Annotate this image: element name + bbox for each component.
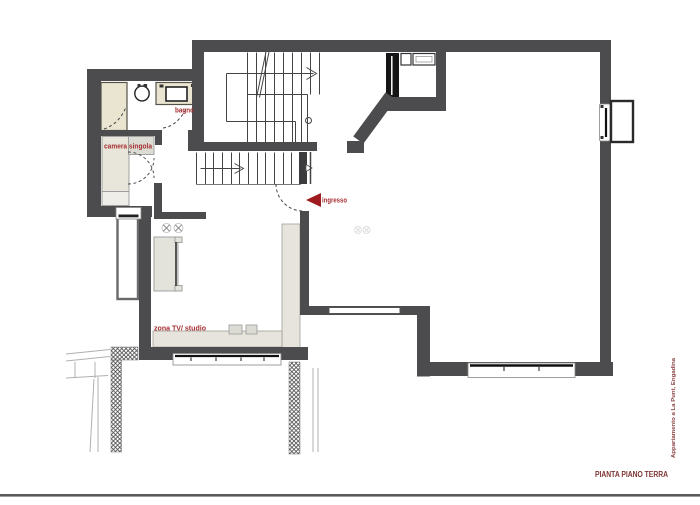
svg-text:PIANTA PIANO TERRA: PIANTA PIANO TERRA bbox=[595, 470, 668, 479]
svg-text:zona TV/ studio: zona TV/ studio bbox=[154, 324, 206, 333]
svg-text:camera singola: camera singola bbox=[104, 142, 153, 151]
svg-text:ingresso: ingresso bbox=[322, 196, 347, 205]
svg-text:bagno: bagno bbox=[175, 106, 194, 115]
svg-text:Appartamento a La Punt, Engadi: Appartamento a La Punt, Engadina bbox=[671, 357, 677, 458]
